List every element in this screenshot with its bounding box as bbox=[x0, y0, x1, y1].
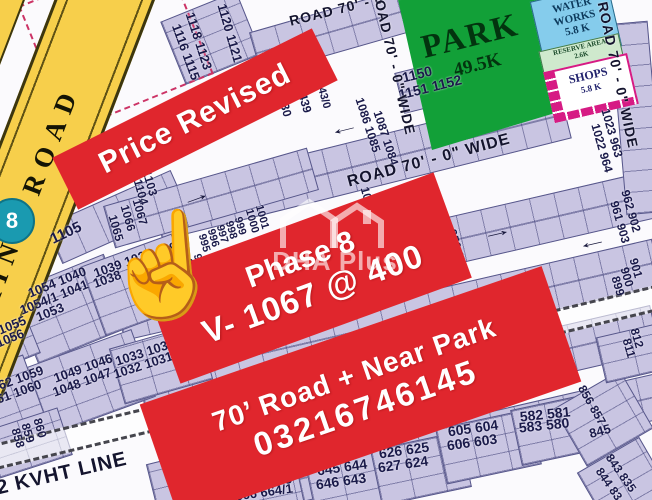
direction-arrow: ← bbox=[326, 114, 362, 141]
pointing-finger-emoji: ☝ bbox=[97, 211, 228, 319]
phase-marker-number: 8 bbox=[6, 208, 18, 234]
plot-map: RING ROAD 8 PARK 49.5K WATER WORKS 5.8 K… bbox=[0, 0, 652, 500]
